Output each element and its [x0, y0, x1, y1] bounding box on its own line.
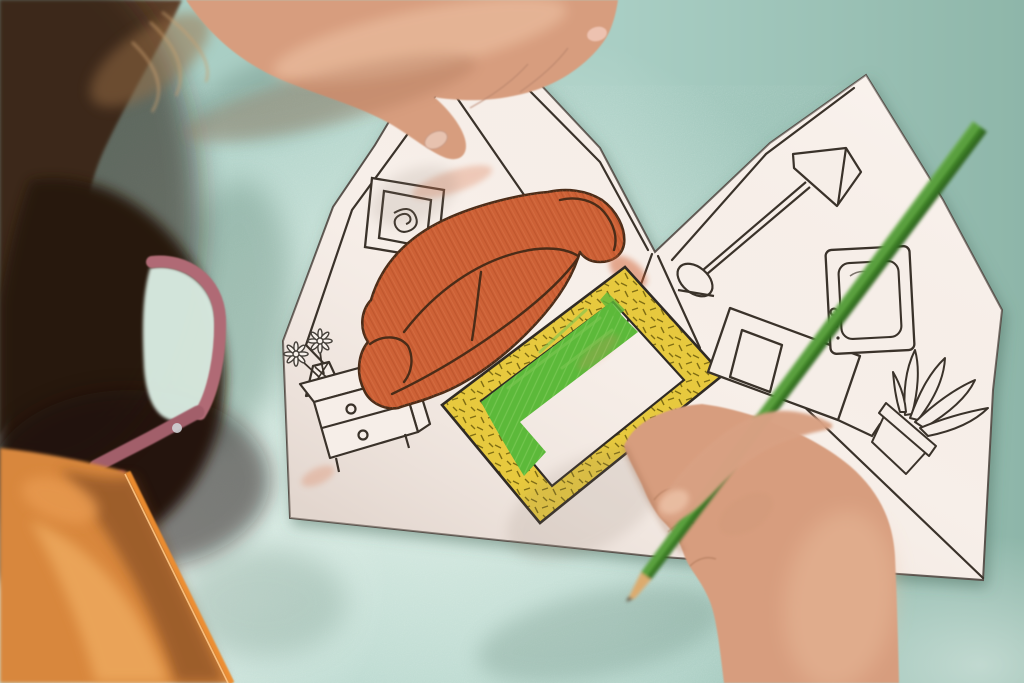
- tv-knob-dot: [836, 336, 839, 339]
- daisy-flower-left: [284, 342, 308, 366]
- daisy-flower-right: [308, 329, 332, 353]
- photo-scene: [0, 0, 1024, 683]
- glasses-hinge: [172, 423, 182, 433]
